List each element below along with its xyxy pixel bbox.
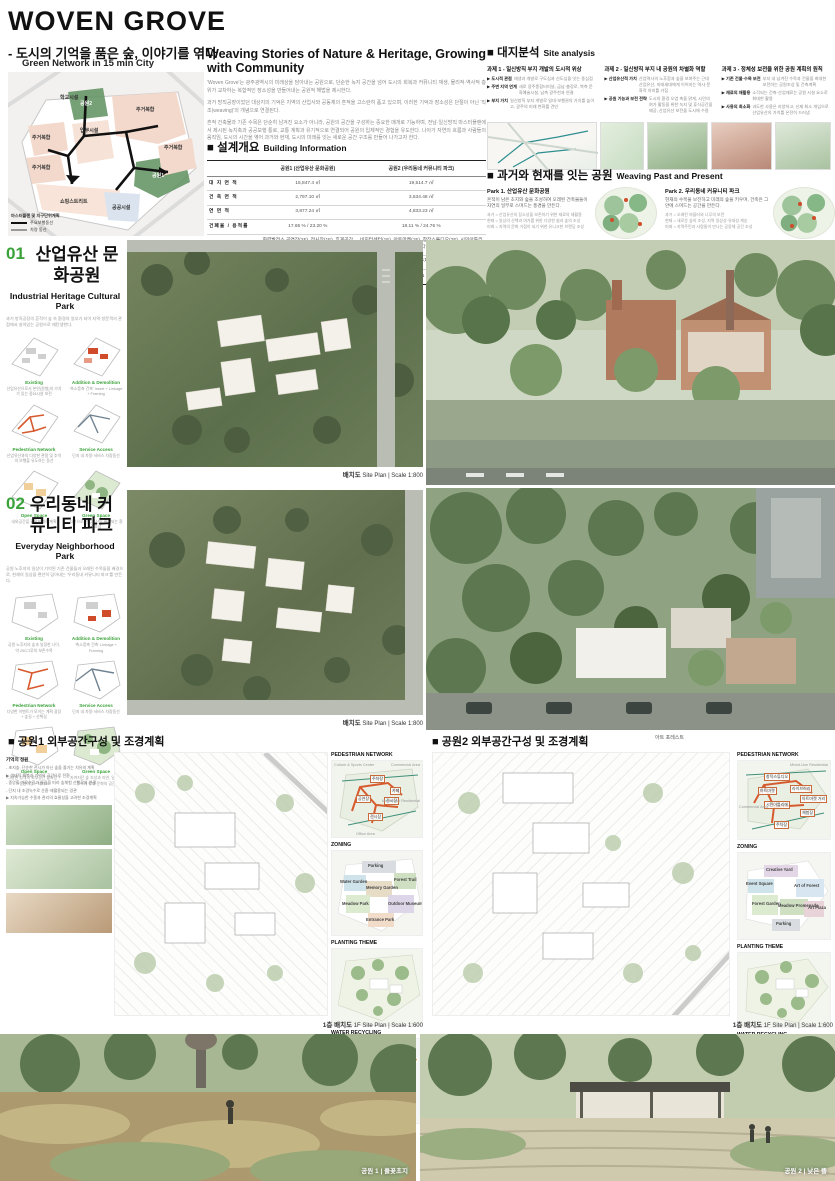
section01-desc: 과거 방직공장의 흔적이 숲 속 환경의 일부가 되어 지역·방문객의 관점에서… xyxy=(6,316,124,329)
legend-main-pedestrian-label: 주요보행동선 xyxy=(30,220,53,226)
landscape1-caption: 1층 배치도 1F Site Plan | Scale 1:600 xyxy=(230,1019,423,1029)
zone-label: Meadow Park xyxy=(342,901,369,906)
binfo-label: 연 면 적 xyxy=(207,205,259,219)
legend-vehicle-label: 차량 동선 xyxy=(30,227,47,233)
landscape1-heading: ■ 공원1 외부공간구성 및 조경계획 xyxy=(8,733,165,749)
landscape1-pednet-title: PEDESTRIAN NETWORK xyxy=(331,752,423,758)
landscape1-inset-photo xyxy=(6,893,112,933)
site-plan-park1-graphic xyxy=(127,240,423,467)
binfo-value: 17.65 % / 23.20 % xyxy=(259,220,357,234)
binfo-value: 3,877.24 ㎡ xyxy=(259,205,357,219)
landscape2-planting-diagram xyxy=(737,952,831,1028)
page-title: WOVEN GROVE xyxy=(8,6,226,37)
rendering-park2-graphic xyxy=(426,488,835,730)
binfo-value: 19,514.7 ㎡ xyxy=(357,177,486,191)
landscape1-planting-title: PLANTING THEME xyxy=(331,940,423,946)
intro-block: Weaving Stories of Nature & Heritage, Gr… xyxy=(207,47,486,148)
pednet-context: Office Area xyxy=(356,832,375,836)
section01-number: 01 xyxy=(6,244,25,287)
zone-label: Event Square xyxy=(746,881,773,886)
diagram-label: Addition & Demolition xyxy=(68,636,124,641)
diagram-caption: '축소증축 건축' Insert + Linkage + Framing xyxy=(68,386,124,397)
zone-label: Outdoor Museum xyxy=(388,901,423,906)
intro-paragraph-1: 'Woven Grove'는 광주광역시의 미래상을 담아내는 공원으로, 단순… xyxy=(207,80,486,95)
zone-label: Forest Garden xyxy=(752,901,781,906)
landscape2-caption-ko: 1층 배치도 xyxy=(733,1022,762,1029)
task-bullet-text: 새로 광주종합터미널, 금남·충장로, 북측 문화예술시설, 남측 광주천과 연… xyxy=(519,84,597,96)
presentation-board: WOVEN GROVE - 도시의 기억을 품은 숲, 이야기를 엮다 Gree… xyxy=(0,0,835,1181)
binfo-value: 3,534.48 ㎡ xyxy=(357,191,486,205)
diagram-caption: 산업유산과의 다양한 관람 및 추억의 보행을 유도하는 동선 xyxy=(6,453,62,464)
park2-concept-bullet: 미래 = 지역주민과 사람들이 만나는 공동체 공간 조성 xyxy=(665,224,769,230)
landscape1-zoning-diagram: Parking Water Garden Forest Trail Memory… xyxy=(331,850,423,936)
task-bullet-key: ▶ 기존 건물·수목 보전 xyxy=(722,76,761,88)
landscape2-plan-drawing xyxy=(432,752,730,1016)
building-info-heading-en: Building Information xyxy=(263,143,346,153)
section02-desc: 공원 노후지의 일상이 기억된 기존 건물들과 오래된 수목들을 배경으로, 현… xyxy=(6,566,124,585)
zone-label: Parking xyxy=(776,921,791,926)
pednet-label: 아트마켓 거리 xyxy=(800,795,827,803)
landscape2-zoning-title: ZONING xyxy=(737,844,831,850)
task-bullet-text: 산업역사의 노후함과 숲을 보여주는 근대 산업유산, 미래세대에게 이어지는 … xyxy=(639,76,714,94)
diagram-pedestrian-network: Pedestrian Network 다양한 이벤트가 모이는 계획 광장 + … xyxy=(6,659,62,720)
map-legend-title: 마스터플랜 및 지구단위계획 xyxy=(11,213,60,219)
task-bullet-text: 일신방직 부지 개발로 일대·보행권의 가치를 높이고, 광주의 미래 변화를 … xyxy=(510,98,596,110)
analysis-task-1: 과제 1 - 일신방직 부지 개발의 도시적 위상 ▶ 도시적 관점재생과 개발… xyxy=(487,65,596,118)
landscape2-heading: ■ 공원2 외부공간구성 및 조경계획 xyxy=(432,733,589,749)
binfo-value: 18.11 % / 24.76 % xyxy=(357,220,486,234)
diagram-caption: 산업유산으로서 본연(원형)의 가치가 있는 중요시설 보전 xyxy=(6,386,62,397)
landscape2-zoning-diagram: Creative Yard Event Square Art of Forest… xyxy=(737,852,831,940)
pednet-context: Mixed-Use Residential xyxy=(382,799,420,803)
section02-title-ko: 우리동네 커뮤니티 파크 xyxy=(30,494,124,537)
weaving-heading-en: Weaving Past and Present xyxy=(617,171,723,181)
map-label-residential-1: 주거복합 xyxy=(32,134,50,141)
landscape1-zoning-title: ZONING xyxy=(331,842,423,848)
diagram-service-access: Service Access 단지 내 차량·서비스 차량동선 xyxy=(68,659,124,720)
diagram-caption: 단지 내 차량·서비스 차량동선 xyxy=(68,453,124,458)
table-row: 건폐율 / 용적률17.65 % / 23.20 %18.11 % / 24.7… xyxy=(207,220,486,234)
diagram-label: Service Access xyxy=(68,703,124,708)
weaving-park1-card: Park 1. 산업유산 문화공원 흔적이 남은 초지와 숲을 조성하여 오래된… xyxy=(487,187,657,239)
task-bullet-text: 과도한 사용은 지양하고, 신재 최소 개입으로 산업유산의 가치를 온전히 드… xyxy=(752,104,831,116)
site-plan-park2 xyxy=(127,490,423,715)
pednet-label: 공연장 xyxy=(356,795,371,803)
park2-concept-desc: 현재의 수목을 보전하고 미래의 숲을 키우며, 건축은 그 안에 스며드는 공… xyxy=(665,197,769,210)
landscape1-plan-drawing xyxy=(114,752,328,1016)
binfo-col-park1: 공원1 (산업유산 문화공원) xyxy=(259,161,357,177)
diagram-pedestrian-network: Pedestrian Network 산업유산과의 다양한 관람 및 추억의 보… xyxy=(6,403,62,464)
section01-title-en: Industrial Heritage Cultural Park xyxy=(6,291,124,311)
analysis-task-3: 과제 3 - 정체성 보전을 위한 공원 계획의 원칙 ▶ 기존 건물·수목 보… xyxy=(722,65,831,118)
table-row: 건 축 면 적2,797.10 ㎡3,534.48 ㎡ xyxy=(207,191,486,205)
task-bullet-key: ▶ 부지 가치 xyxy=(487,98,508,110)
site-plan-park1 xyxy=(127,240,423,467)
landscape1-note: - 중앙홀 가로수길과 물길을 따라 숲체험 산책로의 연결 xyxy=(6,780,112,786)
map-label-school: 학교시설 xyxy=(60,94,78,101)
pednet-label: 카페 xyxy=(390,787,401,795)
binfo-label: 건 축 면 적 xyxy=(207,191,259,205)
pednet-context: Commercial Area xyxy=(739,805,768,809)
landscape1-pednet-diagram: 주차장 카페 공연장 전시장 전시장 Culture & Sports Cent… xyxy=(331,760,423,838)
map-label-residential-2: 주거복합 xyxy=(32,164,50,171)
landscape1-notes: 기억의 정원 - 초지숲: 단순한 전시가 아닌 숲을 즐기는 치유의 계획 ▶… xyxy=(6,757,112,935)
landscape2-caption: 1층 배치도 1F Site Plan | Scale 1:600 xyxy=(642,1019,833,1029)
weaving-block: ■ 과거와 현재를 잇는 공원Weaving Past and Present … xyxy=(487,167,831,239)
map-label-shopping-street: 쇼핑스트리트 xyxy=(60,198,88,205)
landscape2-pednet-diagram: 창작스튜디오 아트마켓 라이브러리 시민아틀리에 아트마켓 거리 체험장 주차장… xyxy=(737,760,831,840)
addition-diagram-graphic xyxy=(70,336,122,378)
table-row: 연 면 적3,877.24 ㎡4,833.23 ㎡ xyxy=(207,205,486,219)
section02-title-en: Everyday Neighborhood Park xyxy=(6,541,124,561)
site-plan1-caption: 배치도 Site Plan | Scale 1:800 xyxy=(127,469,423,479)
rendering-park1-graphic xyxy=(426,240,835,485)
task-title: 과제 2 - 일신방직 부지 내 공원의 차별화 역할 xyxy=(604,65,713,73)
weaving-heading-ko: ■ 과거와 현재를 잇는 공원 xyxy=(487,170,613,182)
landscape1-note: - 단지 내 조경녹수로 순환·재활용되는 경관 xyxy=(6,788,112,794)
zone-label: Entrance Park xyxy=(366,917,394,922)
pednet-label: 창작스튜디오 xyxy=(764,773,790,781)
section01-title-ko: 산업유산 문화공원 xyxy=(30,244,124,287)
weaving-park2-card: Park 2. 우리동네 커뮤니티 파크 현재의 수목을 보전하고 미래의 숲을… xyxy=(665,187,835,239)
footer-rendering-park2: 공원 2 | 낮은 뜰 xyxy=(420,1034,835,1181)
map-label-residential-3: 주거복합 xyxy=(136,106,154,113)
map-label-office: 업무시설 xyxy=(80,127,98,134)
pednet-label: 아트마켓 xyxy=(758,787,777,795)
footer-rendering-park2-graphic xyxy=(420,1034,835,1181)
diagram-label: Addition & Demolition xyxy=(68,380,124,385)
site-plan2-caption: 배치도 Site Plan | Scale 1:800 xyxy=(127,717,423,727)
task-bullet-key: ▶ 공원 기능과 보전 전략 xyxy=(604,96,647,114)
task-bullet-text: 재생과 개발로 구도심과 신도심을 잇는 중심점 xyxy=(514,76,593,82)
landscape1-note: - 초지숲: 단순한 전시가 아닌 숲을 즐기는 치유의 계획 xyxy=(6,765,112,771)
analysis-thumbnail-green-map xyxy=(600,122,644,170)
binfo-col-park2: 공원2 (우리동네 커뮤니티 파크) xyxy=(357,161,486,177)
pednet-context: Commercial Area xyxy=(391,763,420,767)
analysis-thumbnail-heritage-photo xyxy=(711,122,772,170)
site-plan1-caption-en: Site Plan | Scale 1:800 xyxy=(362,473,423,479)
task-bullet-key: ▶ 도시적 관점 xyxy=(487,76,512,82)
task-bullet-key: ▶ 사용의 최소화 xyxy=(722,104,751,116)
diagram-caption: 단지 내 차량·서비스 차량동선 xyxy=(68,709,124,714)
addition-diagram-graphic xyxy=(70,592,122,634)
pednet-label: 주차장 xyxy=(370,775,385,783)
diagram-caption: 공원 노후지의 숲과 일정한 나이, 약 250그루의 보존수목 xyxy=(6,642,62,653)
task-bullet-text: 부지 내 남겨진 수목과 건물을 최대한 보전하는 공원조성 및 건축계획 xyxy=(763,76,831,88)
site-plan-park2-graphic xyxy=(127,490,423,715)
landscape2-pednet-title: PEDESTRIAN NETWORK xyxy=(737,752,831,758)
task-bullet-text: 소각되는 건축·산업재료는 공원 시설 요소로 최대한 활용 xyxy=(752,90,831,102)
task-bullet-key: ▶ 재료의 재활용 xyxy=(722,90,751,102)
zone-label: Memory Garden xyxy=(366,885,398,890)
park1-concept-diagram xyxy=(595,187,657,239)
landscape2-plan-graphic xyxy=(433,753,730,1016)
diagram-service-access: Service Access 단지 내 차량·서비스 차량동선 xyxy=(68,403,124,464)
map-legend: 마스터플랜 및 지구단위계획 주요보행동선 차량 동선 xyxy=(11,213,60,233)
binfo-label: 건폐율 / 용적률 xyxy=(207,220,259,234)
pednet-context: Culture & Sports Center xyxy=(334,763,374,767)
map-label-park1: 공원1 xyxy=(152,172,164,179)
diagram-existing: Existing 공원 노후지의 숲과 일정한 나이, 약 250그루의 보존수… xyxy=(6,592,62,653)
binfo-label: 대 지 면 적 xyxy=(207,177,259,191)
masterplan-map-graphic xyxy=(8,72,204,236)
diagram-label: Existing xyxy=(6,636,62,641)
footer-rendering-park1-graphic xyxy=(0,1034,416,1181)
existing-diagram-graphic xyxy=(8,592,60,634)
pednet-context: Mixed-Use Residential xyxy=(790,763,828,767)
task-title: 과제 3 - 정체성 보전을 위한 공원 계획의 원칙 xyxy=(722,65,831,73)
rendering-park1 xyxy=(426,240,835,485)
pedestrian-diagram-graphic xyxy=(8,403,60,445)
diagram-caption: 다양한 이벤트가 모이는 계획 광장 + 숲길 + 산책길 xyxy=(6,709,62,720)
site-analysis-heading-en: Site analysis xyxy=(543,48,595,58)
section02-number: 02 xyxy=(6,494,25,537)
rendering-park2 xyxy=(426,488,835,730)
masterplan-map: 학교시설 업무시설 주거복합 주거복합 주거복합 주거복합 쇼핑스트리트 공공시… xyxy=(8,72,204,236)
map-label-public-facility: 공공시설 xyxy=(112,204,130,211)
landscape2-planting-title: PLANTING THEME xyxy=(737,944,831,950)
footer-park1-caption: 공원 1 | 풀꽃초지 xyxy=(361,1165,408,1175)
landscape1-planting-diagram xyxy=(331,948,423,1026)
zone-label: Parking xyxy=(368,863,383,868)
task-title: 과제 1 - 일신방직 부지 개발의 도시적 위상 xyxy=(487,65,596,73)
diagram-label: Service Access xyxy=(68,447,124,452)
site-plan2-caption-en: Site Plan | Scale 1:800 xyxy=(362,721,423,727)
analysis-thumbnail-map xyxy=(487,122,597,170)
table-row: 대 지 면 적15,847.4 ㎡19,514.7 ㎡ xyxy=(207,177,486,191)
map-label-residential-4: 주거복합 xyxy=(164,144,182,151)
pednet-label: 체험장 xyxy=(800,809,815,817)
legend-vehicle-swatch xyxy=(11,229,27,231)
diagram-existing: Existing 산업유산으로서 본연(원형)의 가치가 있는 중요시설 보전 xyxy=(6,336,62,397)
landscape1-note: ▶ 생태적 회복과 기억의 공간으로 전환 xyxy=(6,773,112,779)
landscape1-notes-title: 기억의 정원 xyxy=(6,757,112,764)
park1-concept-desc: 흔적이 남은 초지와 숲을 조성하여 오래된 건축물들이 자연의 일부로 스며드… xyxy=(487,197,591,210)
landscape1-inset-photo xyxy=(6,805,112,845)
pednet-label: 주차장 xyxy=(774,821,789,829)
analysis-thumbnail-site-photo xyxy=(775,122,831,170)
zone-label: Art Plaza xyxy=(808,905,826,910)
pednet-label: 전시장 xyxy=(368,813,383,821)
site-plan2-caption-ko: 배치도 xyxy=(343,720,361,727)
intro-heading: Weaving Stories of Nature & Heritage, Gr… xyxy=(207,47,486,75)
landscape1-plan-graphic xyxy=(115,753,328,1016)
analysis-task-2: 과제 2 - 일신방직 부지 내 공원의 차별화 역할 ▶ 산업유산적 가치산업… xyxy=(604,65,713,118)
site-analysis-heading-ko: ■ 대지분석 xyxy=(487,47,539,59)
binfo-value: 4,833.23 ㎡ xyxy=(357,205,486,219)
map-caption: Green Network in 15 min City xyxy=(22,58,154,69)
diagram-caption: '축소증축 건축' Linkage + Framing xyxy=(68,642,124,653)
zone-label: Art of Forest xyxy=(794,883,819,888)
diagram-addition-demolition: Addition & Demolition '축소증축 건축' Linkage … xyxy=(68,592,124,653)
site-analysis-block: ■ 대지분석Site analysis 과제 1 - 일신방직 부지 개발의 도… xyxy=(487,44,831,170)
zone-label: Creative Yard xyxy=(766,867,793,872)
intro-paragraph-2: 과거 방직공장이었던 대상지의 기억은 지역의 산업사와 공동체의 흔적을 고스… xyxy=(207,100,486,115)
task-bullet-text: 도시의 환경 오염 축을 맑게, 시민의 여가 활동을 위한 녹지 및 휴식공간… xyxy=(649,96,714,114)
diagram-label: Pedestrian Network xyxy=(6,703,62,708)
footer-park2-caption: 공원 2 | 낮은 뜰 xyxy=(784,1165,827,1175)
binfo-value: 2,797.10 ㎡ xyxy=(259,191,357,205)
existing-diagram-graphic xyxy=(8,336,60,378)
landscape1-caption-ko: 1층 배치도 xyxy=(323,1022,352,1029)
service-diagram-graphic xyxy=(70,659,122,701)
legend-main-pedestrian-swatch xyxy=(11,222,27,225)
zone-label: Water Garden xyxy=(340,879,367,884)
diagram-addition-demolition: Addition & Demolition '축소증축 건축' Insert +… xyxy=(68,336,124,397)
park2-concept-title: Park 2. 우리동네 커뮤니티 파크 xyxy=(665,187,769,195)
diagram-label: Pedestrian Network xyxy=(6,447,62,452)
landscape1-inset-photo xyxy=(6,849,112,889)
footer-rendering-park1: 공원 1 | 풀꽃초지 xyxy=(0,1034,416,1181)
landscape1-note: ▶ 지속가능한 수종과 관리의 효율성을 고려한 조경계획 xyxy=(6,795,112,801)
park1-concept-title: Park 1. 산업유산 문화공원 xyxy=(487,187,591,195)
site-plan1-caption-ko: 배치도 xyxy=(343,472,361,479)
task-bullet-key: ▶ 주변 지역 연계 xyxy=(487,84,517,96)
landscape2-plan-note: 아트 포레스트 xyxy=(655,734,684,741)
park1-concept-bullet: 미래 = 지역의 문화 거점이 되기 위한 유니크한 브랜딩 조성 xyxy=(487,224,591,230)
pednet-label: 라이브러리 xyxy=(790,785,812,793)
task-bullet-key: ▶ 산업유산적 가치 xyxy=(604,76,637,94)
section01-sidebar: 01 산업유산 문화공원 Industrial Heritage Cultura… xyxy=(6,244,124,530)
zone-label: Forest Trail xyxy=(394,877,417,882)
landscape2-caption-en: 1F Site Plan | Scale 1:600 xyxy=(764,1023,833,1029)
binfo-value: 15,847.4 ㎡ xyxy=(259,177,357,191)
analysis-thumbnail-park-diagram xyxy=(647,122,708,170)
landscape1-caption-en: 1F Site Plan | Scale 1:600 xyxy=(354,1023,423,1029)
building-info-heading-ko: ■ 설계개요 xyxy=(207,142,259,154)
park2-concept-diagram xyxy=(773,187,835,239)
pedestrian-diagram-graphic xyxy=(8,659,60,701)
service-diagram-graphic xyxy=(70,403,122,445)
map-label-park2: 공원2 xyxy=(80,100,92,107)
diagram-label: Existing xyxy=(6,380,62,385)
